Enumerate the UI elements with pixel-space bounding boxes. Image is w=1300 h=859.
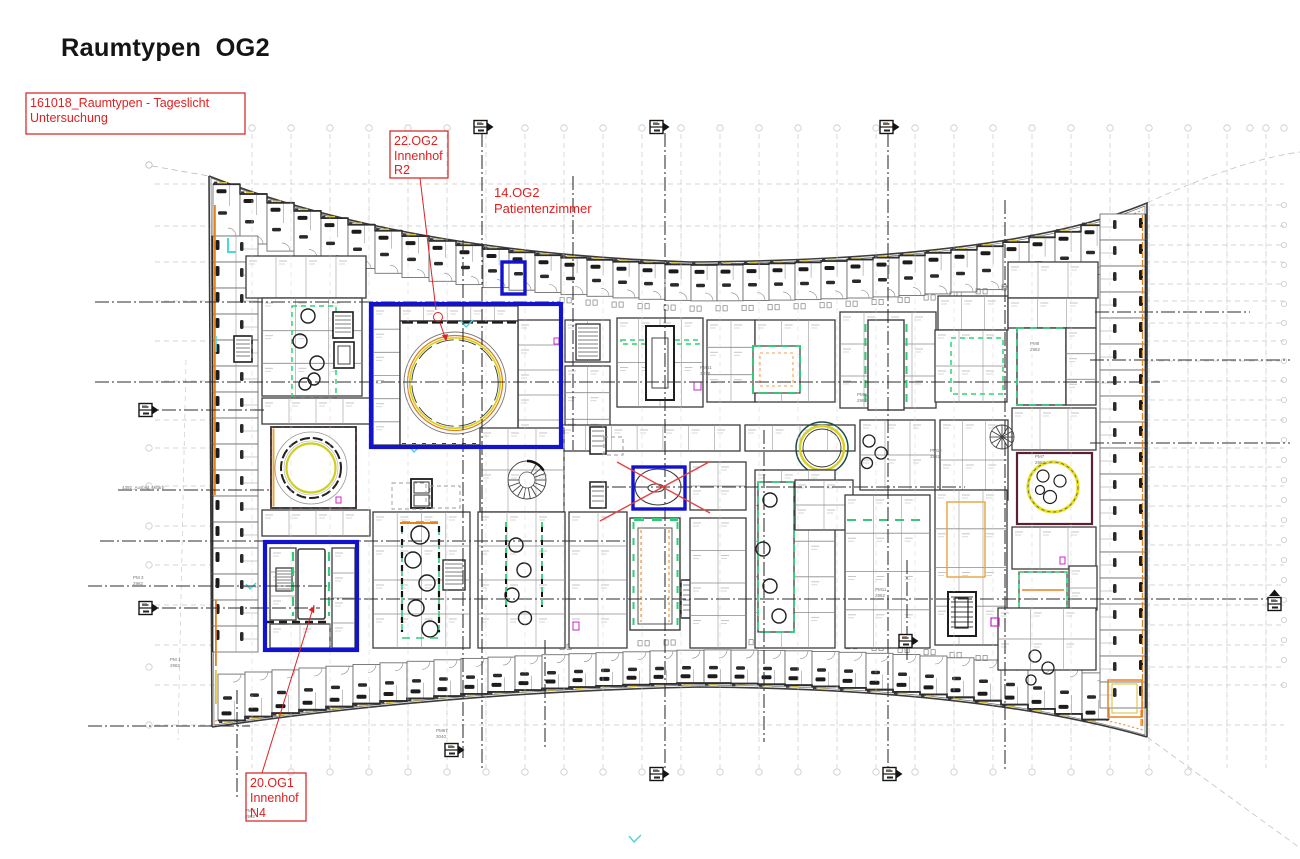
svg-text:N4: N4 (250, 806, 266, 820)
svg-text:PM8: PM8 (1030, 341, 1040, 346)
svg-text:PM67: PM67 (436, 728, 448, 733)
svg-text:2982: 2982 (170, 663, 181, 668)
svg-text:Innenhof: Innenhof (250, 791, 299, 805)
svg-text:PM 3: PM 3 (133, 575, 144, 580)
svg-text:2982: 2982 (1030, 347, 1041, 352)
svg-text:Untersuchung: Untersuchung (30, 111, 108, 125)
svg-text:161018_Raumtypen - Tageslicht: 161018_Raumtypen - Tageslicht (30, 96, 210, 110)
svg-text:4392_Ausbild_Mitarb: 4392_Ausbild_Mitarb (122, 485, 165, 490)
svg-text:2982: 2982 (857, 398, 868, 403)
svg-text:PM 1: PM 1 (170, 657, 181, 662)
svg-text:2982: 2982 (930, 454, 941, 459)
svg-text:2982: 2982 (1035, 460, 1046, 465)
svg-text:Raumtypen OG2: Raumtypen OG2 (61, 34, 270, 62)
svg-text:PM7: PM7 (1035, 454, 1045, 459)
svg-text:R2: R2 (394, 163, 410, 177)
svg-text:2982: 2982 (875, 593, 886, 598)
svg-text:2982: 2982 (133, 581, 144, 586)
svg-text:3018: 3018 (700, 371, 711, 376)
svg-text:Patientenzimmer: Patientenzimmer (494, 201, 592, 216)
svg-text:Innenhof: Innenhof (394, 149, 443, 163)
svg-text:PM11: PM11 (875, 587, 887, 592)
svg-text:PM62: PM62 (857, 392, 869, 397)
svg-text:PM12: PM12 (930, 448, 942, 453)
svg-text:22.OG2: 22.OG2 (394, 134, 438, 148)
svg-text:3040: 3040 (436, 734, 447, 739)
svg-text:14.OG2: 14.OG2 (494, 185, 540, 200)
svg-text:20.OG1: 20.OG1 (250, 776, 294, 790)
svg-text:PM61: PM61 (700, 365, 712, 370)
